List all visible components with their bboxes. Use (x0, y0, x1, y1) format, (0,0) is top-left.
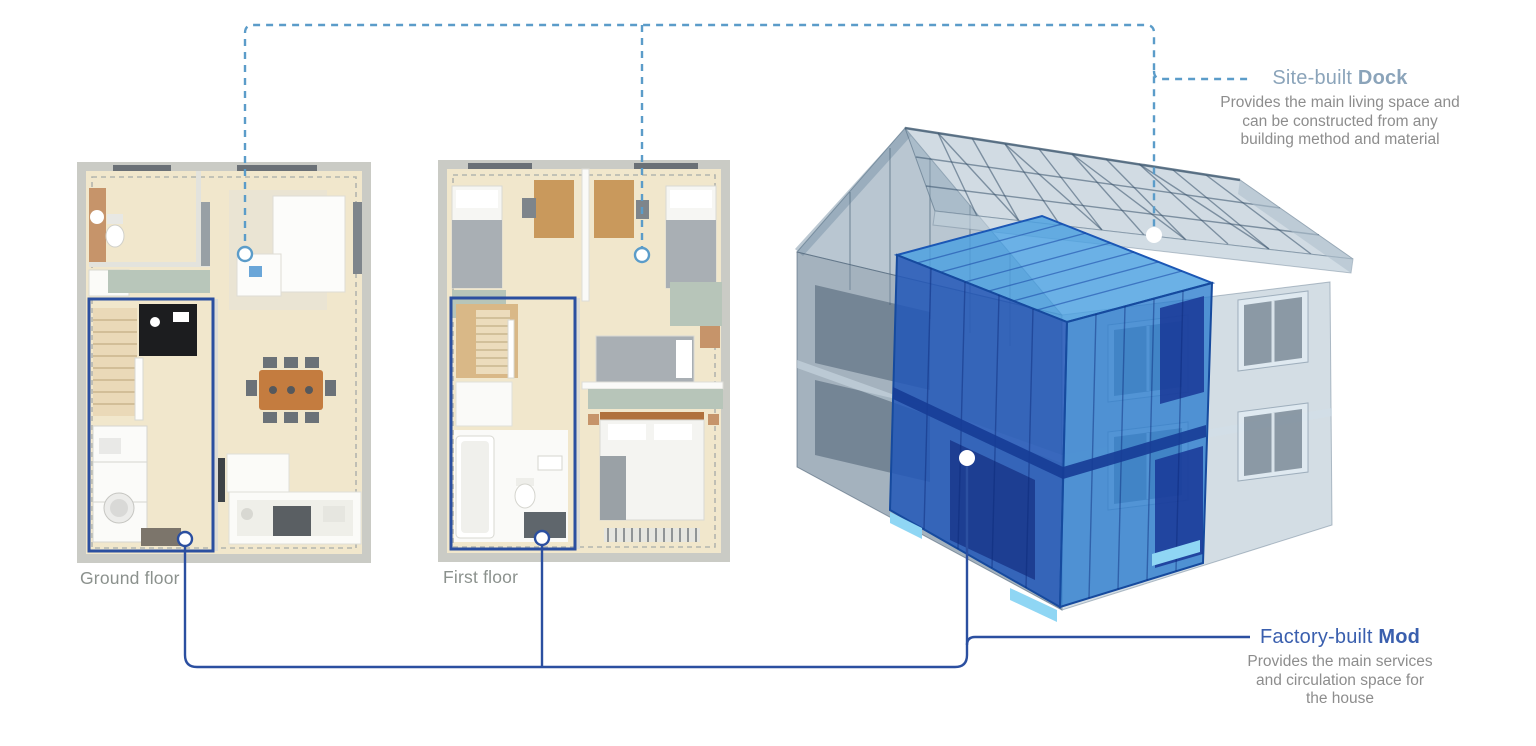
site-built-heading-prefix: Site-built (1272, 67, 1358, 89)
modular-house-diagram: Ground floor First floor Site-built Dock… (0, 0, 1536, 746)
desc-line: the house (1306, 690, 1374, 707)
desc-line: building method and material (1240, 131, 1439, 148)
site-built-callout: Site-built Dock Provides the main living… (1212, 67, 1468, 150)
desc-line: Provides the main services (1247, 653, 1432, 670)
site-built-connector (245, 25, 1154, 254)
factory-built-callout: Factory-built Mod Provides the main serv… (1212, 626, 1468, 709)
desc-line: and circulation space for (1256, 672, 1424, 689)
factory-built-connector (185, 458, 967, 667)
ground-floor-label: Ground floor (80, 568, 180, 589)
factory-built-connector-branch-label (967, 637, 1250, 645)
first-dock-marker (635, 248, 649, 262)
house-mod-marker (959, 450, 975, 466)
ground-mod-marker (178, 532, 192, 546)
first-mod-marker (535, 531, 549, 545)
desc-line: Provides the main living space and (1220, 94, 1460, 111)
site-built-description: Provides the main living space and can b… (1212, 94, 1468, 150)
first-floor-label: First floor (443, 567, 518, 588)
site-built-heading: Site-built Dock (1212, 67, 1468, 90)
roof-dock-marker (1146, 227, 1162, 243)
ground-dock-marker (238, 247, 252, 261)
desc-line: can be constructed from any (1242, 113, 1438, 130)
factory-built-heading: Factory-built Mod (1212, 626, 1468, 649)
factory-built-heading-bold: Mod (1378, 626, 1420, 648)
site-built-heading-bold: Dock (1358, 67, 1408, 89)
factory-built-description: Provides the main services and circulati… (1212, 653, 1468, 709)
factory-built-heading-prefix: Factory-built (1260, 626, 1378, 648)
